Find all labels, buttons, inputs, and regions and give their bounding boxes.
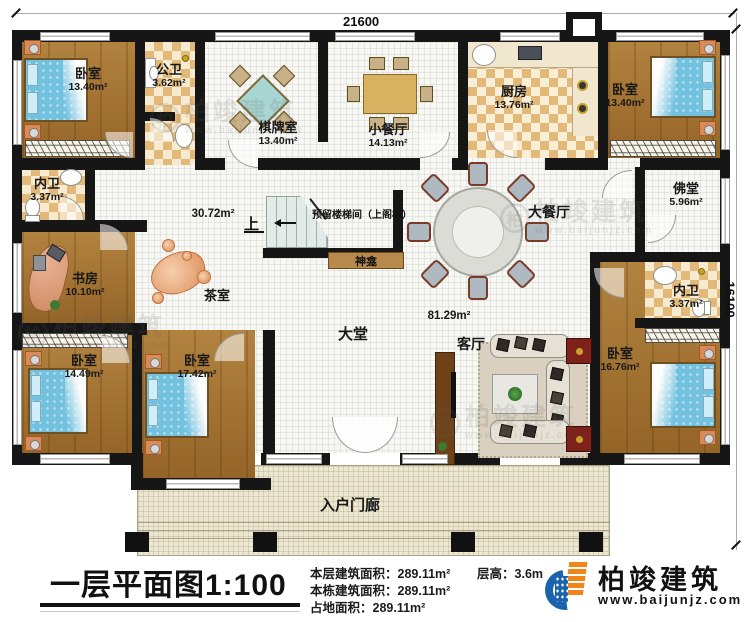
room-label-living-room: 客厅 bbox=[457, 336, 485, 353]
window bbox=[40, 454, 110, 464]
dining-table-small bbox=[363, 74, 417, 114]
room-label-bedroom-bl1: 卧室14.49m² bbox=[64, 353, 103, 381]
watermark-logo-icon: 柏 bbox=[430, 408, 460, 438]
room-label-inner-bath-left: 内卫3.37m² bbox=[30, 176, 63, 204]
pillow bbox=[702, 61, 713, 83]
window bbox=[13, 350, 22, 445]
blanket bbox=[184, 374, 207, 436]
sofa-pillow bbox=[550, 367, 564, 381]
sofa-pillow bbox=[532, 338, 546, 352]
area-label-hall-west: 30.72m² bbox=[192, 208, 235, 222]
wall-int bbox=[258, 158, 420, 170]
porch-column bbox=[253, 532, 277, 552]
window bbox=[721, 178, 730, 244]
stair-arrow-line bbox=[280, 222, 296, 224]
room-label-kitchen: 厨房13.76m² bbox=[494, 84, 533, 112]
porch-column bbox=[579, 532, 603, 552]
shrine-label: 神龛 bbox=[355, 253, 377, 269]
stair-up-label: 上 bbox=[244, 213, 259, 234]
pillow bbox=[148, 405, 158, 426]
chair bbox=[420, 86, 433, 102]
title-underline-thin bbox=[40, 611, 300, 612]
top-dimension-label: 21600 bbox=[343, 14, 379, 29]
watermark-logo-icon: 柏 bbox=[500, 203, 530, 233]
room-label-public-bath: 公卫3.62m² bbox=[152, 62, 185, 90]
wall-int bbox=[205, 158, 225, 170]
wall-int bbox=[12, 158, 145, 170]
light-icon bbox=[182, 55, 189, 62]
pillow bbox=[27, 92, 38, 114]
blanket bbox=[652, 58, 676, 116]
wall-int bbox=[635, 318, 730, 328]
porch-step bbox=[137, 530, 610, 531]
window bbox=[616, 32, 704, 41]
tea-stone bbox=[162, 239, 175, 252]
sink-icon bbox=[472, 44, 496, 66]
room-label-tea-room: 茶室 bbox=[204, 288, 230, 303]
toilet-tank bbox=[25, 215, 40, 222]
burner-icon bbox=[577, 80, 588, 91]
plant-icon bbox=[438, 442, 447, 451]
room-label-porch: 入户门廊 bbox=[320, 497, 380, 515]
wall-int bbox=[640, 158, 730, 170]
porch-column bbox=[125, 532, 149, 552]
chimney bbox=[566, 12, 602, 43]
brand-website: www.baijunjz.com bbox=[598, 592, 742, 607]
wall-int bbox=[458, 42, 468, 170]
watermark-logo-icon: 柏 bbox=[18, 318, 48, 348]
tea-stone bbox=[197, 270, 211, 284]
blanket bbox=[652, 364, 676, 426]
room-label-large-dining: 大餐厅 bbox=[528, 204, 570, 221]
plant-icon bbox=[508, 387, 522, 401]
nightstand bbox=[699, 121, 716, 136]
nightstand bbox=[699, 345, 716, 360]
title-underline bbox=[40, 603, 300, 607]
nightstand bbox=[25, 351, 42, 366]
pillow bbox=[31, 401, 41, 422]
room-label-bedroom-bl2: 卧室17.42m² bbox=[177, 353, 216, 381]
stat-footprint-area: 占地面积：289.11m² bbox=[310, 597, 425, 616]
stove-icon bbox=[518, 46, 542, 60]
pillow bbox=[148, 379, 158, 400]
wall-int bbox=[318, 42, 328, 142]
chair bbox=[347, 86, 360, 102]
chair bbox=[407, 222, 431, 242]
nightstand bbox=[145, 354, 162, 369]
plant-icon bbox=[50, 300, 60, 310]
wall-int bbox=[263, 330, 275, 465]
nightstand bbox=[145, 440, 162, 455]
watermark: 柏 柏竣建筑www.baijunjz.com bbox=[500, 200, 653, 236]
watermark: 柏 柏竣建筑www.baijunjz.com bbox=[430, 405, 583, 441]
room-label-bedroom-tr: 卧室13.40m² bbox=[605, 82, 644, 110]
window bbox=[335, 32, 415, 41]
window bbox=[721, 55, 730, 150]
watermark: 柏 柏竣建筑www.baijunjz.com bbox=[18, 315, 171, 351]
window bbox=[402, 454, 448, 464]
tea-stone bbox=[152, 292, 164, 304]
nightstand bbox=[699, 40, 716, 55]
nightstand bbox=[24, 40, 41, 55]
chair bbox=[468, 276, 488, 300]
window bbox=[500, 32, 560, 41]
light-icon bbox=[698, 268, 705, 275]
pillow bbox=[703, 396, 714, 418]
stat-floor-height: 层高：3.6m bbox=[477, 563, 543, 582]
chair bbox=[393, 57, 409, 70]
pillow bbox=[703, 368, 714, 390]
stair-arrow-head bbox=[274, 219, 281, 227]
pillow bbox=[702, 89, 713, 111]
window bbox=[13, 243, 22, 313]
window bbox=[13, 60, 22, 145]
window bbox=[624, 454, 700, 464]
area-label-open-area: 81.29m² bbox=[428, 310, 471, 324]
porch-step bbox=[137, 538, 610, 539]
window bbox=[215, 32, 310, 41]
plan-title: 一层平面图1:100 bbox=[50, 560, 287, 604]
pillow bbox=[31, 375, 41, 396]
window bbox=[266, 454, 322, 464]
room-label-grand-hall: 大堂 bbox=[338, 326, 368, 344]
kitchen-counter-side bbox=[572, 68, 598, 136]
wall-int bbox=[590, 252, 730, 262]
window bbox=[166, 479, 240, 489]
room-label-chess-room: 棋牌室13.40m² bbox=[258, 120, 297, 148]
room-label-small-dining: 小餐厅14.13m² bbox=[368, 122, 407, 150]
wardrobe bbox=[645, 328, 720, 343]
toilet-tank bbox=[704, 301, 711, 315]
nightstand bbox=[24, 124, 41, 139]
room-label-inner-bath-right: 内卫3.37m² bbox=[669, 283, 702, 311]
nightstand bbox=[25, 436, 42, 451]
watermark-logo-icon: 柏 bbox=[150, 103, 180, 133]
right-dimension-label: 16100 bbox=[723, 281, 738, 317]
window bbox=[40, 32, 110, 41]
sofa-pillow bbox=[514, 336, 528, 350]
nightstand bbox=[699, 430, 716, 445]
room-label-study: 书房10.10m² bbox=[65, 271, 104, 299]
room-label-buddha-hall: 佛堂5.96m² bbox=[669, 181, 702, 209]
room-label-bedroom-br: 卧室16.76m² bbox=[600, 346, 639, 374]
tea-stone bbox=[182, 251, 192, 261]
dining-table-inner bbox=[452, 206, 504, 258]
porch-step bbox=[137, 522, 610, 523]
wall-int bbox=[132, 330, 142, 490]
stair-note-label: 预留楼梯间（上阁楼） bbox=[312, 206, 412, 221]
burner-icon bbox=[577, 103, 588, 114]
wall-int bbox=[135, 42, 145, 158]
window bbox=[721, 348, 730, 445]
side-cabinet bbox=[566, 338, 592, 364]
floor-plan-canvas: 21600 16100 bbox=[0, 0, 750, 622]
chair bbox=[468, 162, 488, 186]
wardrobe bbox=[610, 140, 716, 157]
room-label-bedroom-tl: 卧室13.40m² bbox=[68, 66, 107, 94]
computer-icon bbox=[33, 255, 46, 271]
porch-column bbox=[451, 532, 475, 552]
chair bbox=[369, 57, 385, 70]
brand-logo-icon bbox=[543, 558, 595, 616]
sofa-pillow bbox=[496, 338, 510, 352]
pillow bbox=[27, 64, 38, 86]
